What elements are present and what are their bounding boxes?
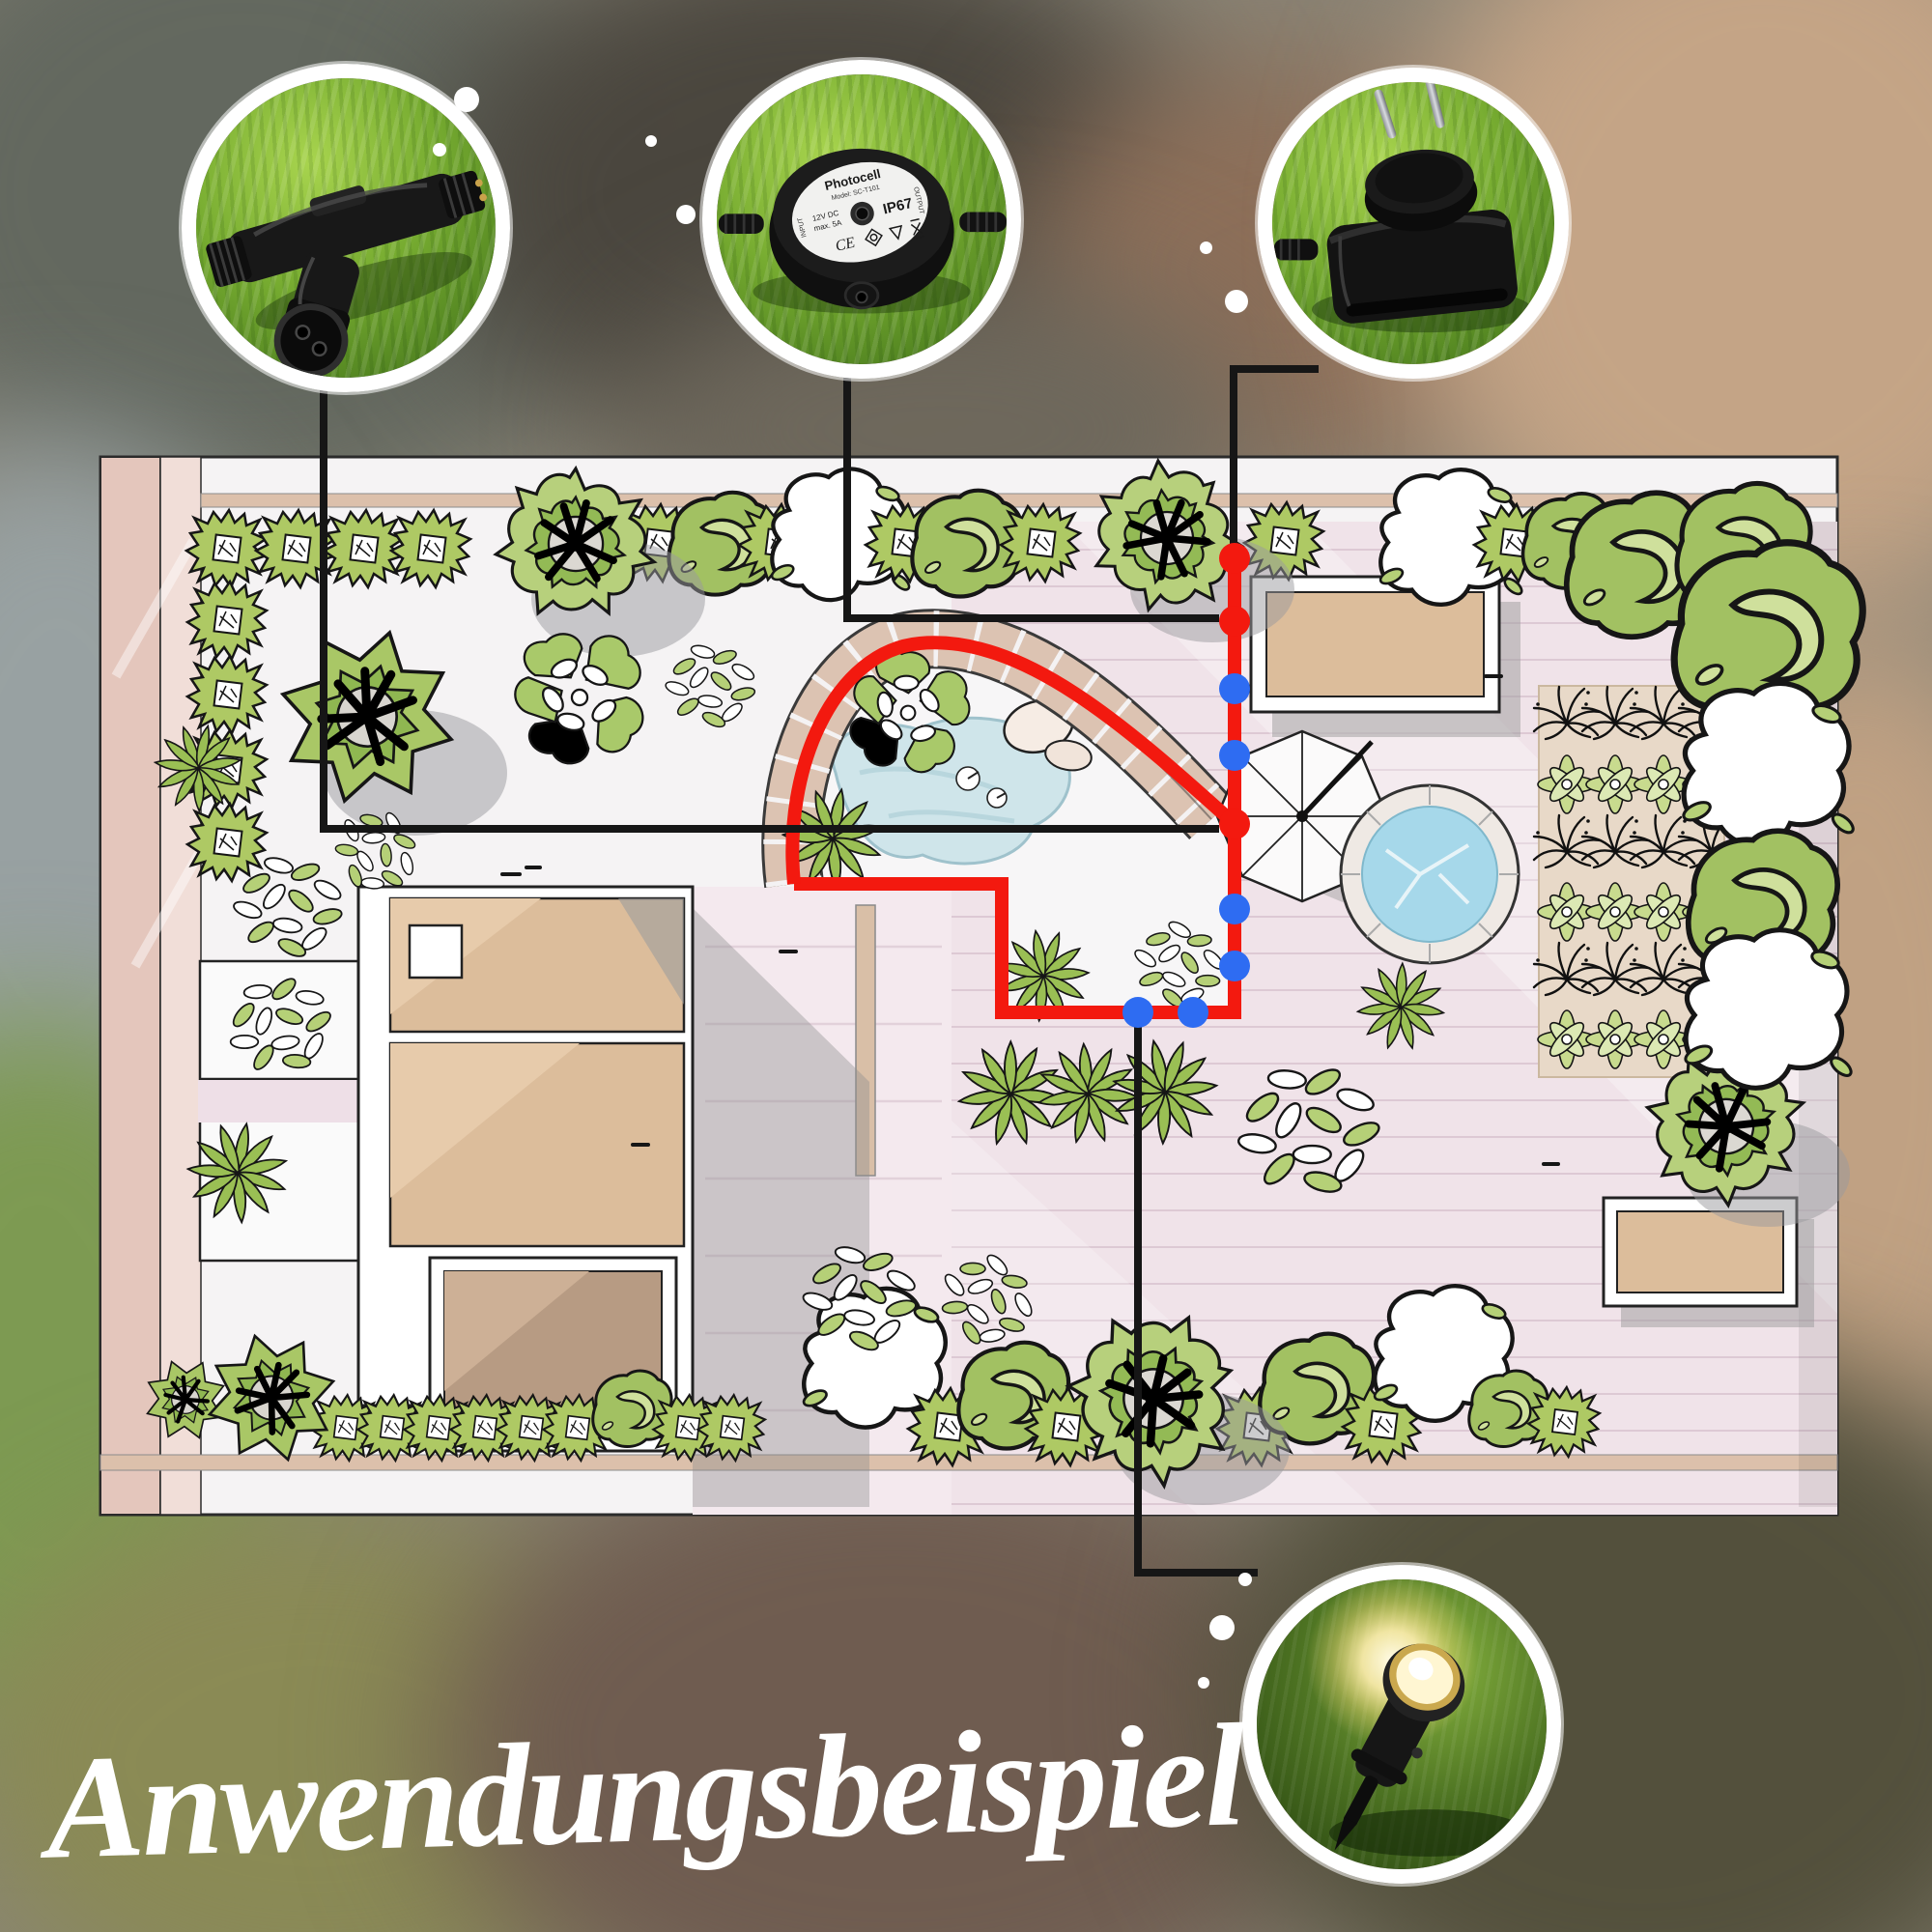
paint-splash xyxy=(1198,1677,1209,1689)
spotlight-icon xyxy=(1257,1579,1547,1869)
page: { "title": { "text": "Anwendungsbeispiel… xyxy=(0,0,1932,1932)
callout-circle-power-plug xyxy=(1258,68,1569,379)
photocell-icon: Photocell Model: SC-T101 INPUT OUTPUT 12… xyxy=(717,74,1007,364)
page-title: Anwendungsbeispiel xyxy=(44,1691,1207,1891)
callout-circle-spotlight xyxy=(1242,1565,1561,1884)
paint-splash xyxy=(433,143,446,156)
paint-splash xyxy=(676,205,696,224)
paint-splash xyxy=(1225,290,1248,313)
paint-splash xyxy=(645,135,657,147)
paint-splash xyxy=(1238,1573,1252,1586)
light-dot xyxy=(1122,997,1153,1028)
t-connector-icon xyxy=(196,78,496,378)
light-dot xyxy=(1219,951,1250,981)
light-dot xyxy=(1219,673,1250,704)
connector-dot xyxy=(1219,606,1250,637)
light-dot xyxy=(1219,894,1250,924)
callout-circle-t-connector xyxy=(182,64,510,392)
light-dot xyxy=(1178,997,1208,1028)
callout-circle-photocell: Photocell Model: SC-T101 INPUT OUTPUT 12… xyxy=(702,60,1021,379)
connector-dot xyxy=(1219,543,1250,574)
connector-dot xyxy=(1219,809,1250,839)
paint-splash xyxy=(1200,241,1212,254)
paint-splash xyxy=(454,87,479,112)
power-plug-icon xyxy=(1272,82,1554,364)
hot-tub xyxy=(1341,785,1519,963)
paint-splash xyxy=(1209,1615,1235,1640)
light-dot xyxy=(1219,740,1250,771)
